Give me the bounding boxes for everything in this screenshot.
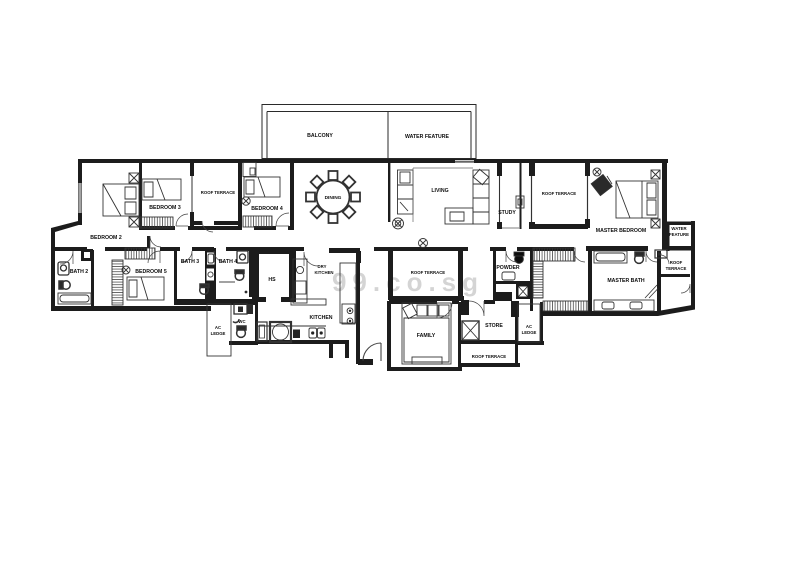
svg-text:DINING: DINING bbox=[325, 195, 342, 201]
svg-text:ROOF: ROOF bbox=[670, 260, 683, 265]
svg-text:FEATURE: FEATURE bbox=[669, 232, 689, 237]
svg-text:BATH 4: BATH 4 bbox=[219, 259, 237, 265]
svg-text:BEDROOM 3: BEDROOM 3 bbox=[149, 205, 181, 211]
svg-text:BATH 3: BATH 3 bbox=[181, 259, 199, 265]
svg-text:TERRACE: TERRACE bbox=[666, 266, 687, 271]
svg-text:DRY: DRY bbox=[318, 264, 327, 269]
svg-text:WC: WC bbox=[238, 319, 245, 324]
svg-text:AC: AC bbox=[526, 324, 532, 329]
svg-text:BATH 2: BATH 2 bbox=[70, 269, 88, 275]
svg-text:POWDER: POWDER bbox=[496, 265, 520, 271]
svg-text:STORE: STORE bbox=[485, 323, 503, 329]
svg-text:AC: AC bbox=[215, 325, 221, 330]
svg-text:ROOF TERRACE: ROOF TERRACE bbox=[542, 191, 577, 196]
svg-text:LIVING: LIVING bbox=[431, 188, 448, 194]
svg-text:KITCHEN: KITCHEN bbox=[314, 270, 333, 275]
svg-text:LEDGE: LEDGE bbox=[522, 330, 537, 335]
svg-text:BEDROOM 5: BEDROOM 5 bbox=[135, 269, 167, 275]
svg-text:MASTER BEDROOM: MASTER BEDROOM bbox=[596, 228, 646, 234]
svg-text:KITCHEN: KITCHEN bbox=[309, 315, 332, 321]
svg-text:BEDROOM 4: BEDROOM 4 bbox=[251, 206, 283, 212]
svg-text:STUDY: STUDY bbox=[498, 210, 516, 216]
svg-text:HS: HS bbox=[268, 277, 276, 283]
svg-text:ROOF TERRACE: ROOF TERRACE bbox=[472, 354, 507, 359]
svg-text:BEDROOM 2: BEDROOM 2 bbox=[90, 235, 122, 241]
svg-text:WATER: WATER bbox=[671, 226, 687, 231]
svg-text:BALCONY: BALCONY bbox=[307, 133, 333, 139]
svg-text:FAMILY: FAMILY bbox=[417, 333, 436, 339]
svg-text:ROOF TERRACE: ROOF TERRACE bbox=[201, 190, 236, 195]
svg-text:MASTER BATH: MASTER BATH bbox=[607, 278, 645, 284]
svg-text:ROOF TERRACE: ROOF TERRACE bbox=[411, 270, 446, 275]
svg-text:WATER FEATURE: WATER FEATURE bbox=[405, 134, 449, 140]
svg-text:LEDGE: LEDGE bbox=[211, 331, 226, 336]
